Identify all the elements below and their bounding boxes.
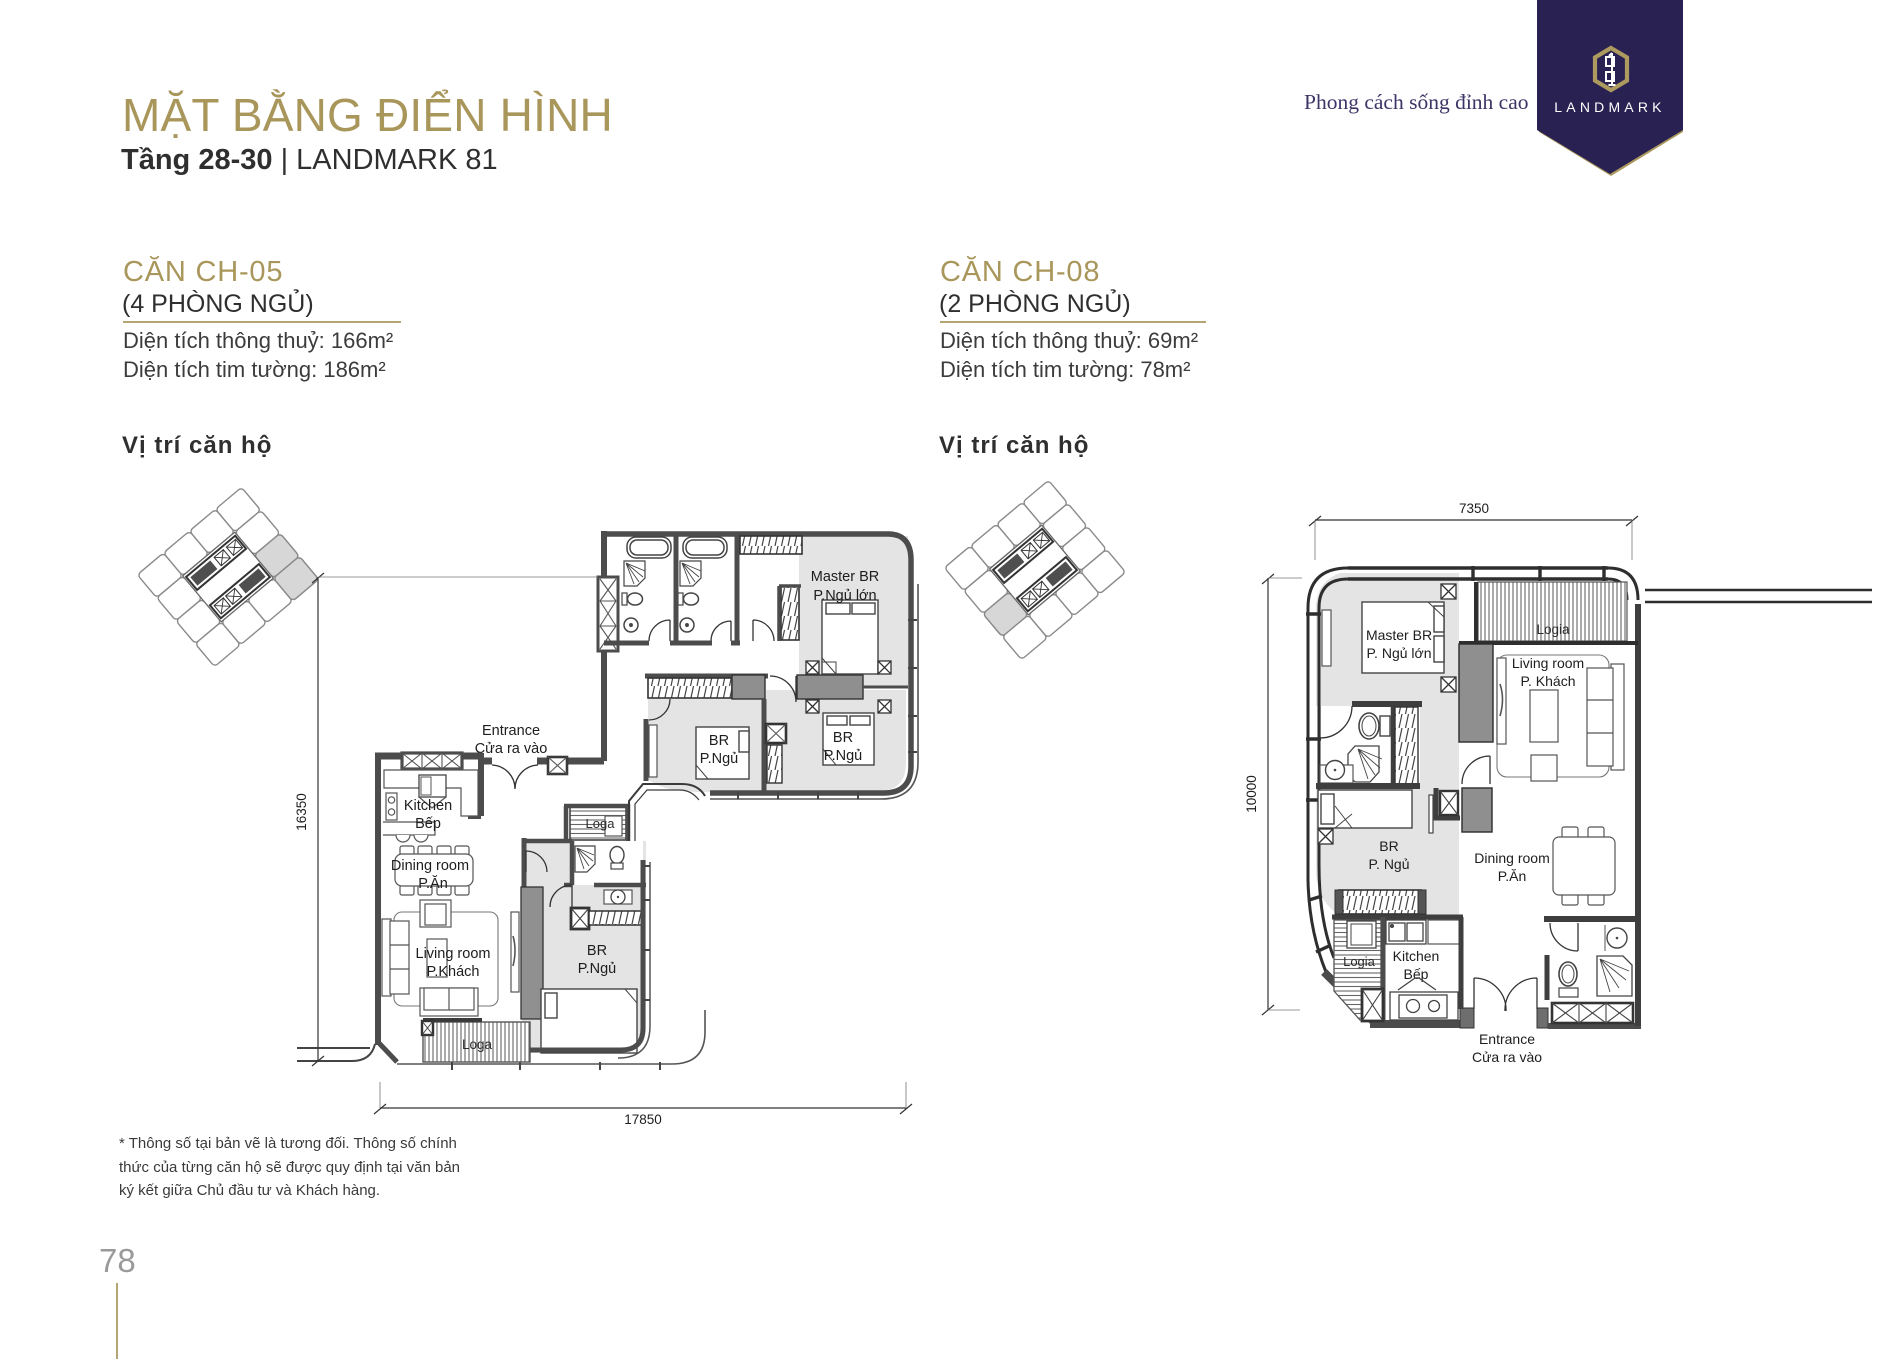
- svg-text:Master BR: Master BR: [1366, 627, 1432, 643]
- svg-text:P.Ăn: P.Ăn: [418, 875, 448, 892]
- svg-text:P.Ngủ lớn: P.Ngủ lớn: [813, 588, 876, 604]
- svg-text:Kitchen: Kitchen: [404, 798, 452, 814]
- svg-text:Dining room: Dining room: [1474, 850, 1549, 866]
- svg-text:17850: 17850: [624, 1112, 662, 1127]
- svg-text:P.Khách: P.Khách: [427, 964, 480, 980]
- svg-text:Dining room: Dining room: [391, 858, 469, 874]
- svg-text:Cửa ra vào: Cửa ra vào: [1472, 1049, 1542, 1065]
- svg-text:P. Ngủ: P. Ngủ: [1369, 856, 1410, 872]
- svg-text:Logia: Logia: [1343, 954, 1376, 969]
- svg-text:P. Ngủ lớn: P. Ngủ lớn: [1367, 645, 1432, 661]
- svg-text:Living room: Living room: [416, 946, 491, 962]
- svg-text:BR: BR: [833, 730, 853, 746]
- svg-text:Entrance: Entrance: [1479, 1031, 1535, 1047]
- svg-text:Logia: Logia: [1536, 622, 1570, 637]
- svg-text:10000: 10000: [1244, 775, 1259, 813]
- svg-text:BR: BR: [709, 733, 729, 749]
- svg-text:P.Ngủ: P.Ngủ: [578, 961, 616, 977]
- svg-text:LANDMARK: LANDMARK: [1554, 99, 1665, 115]
- svg-text:7350: 7350: [1459, 501, 1489, 516]
- svg-text:Master BR: Master BR: [811, 569, 880, 585]
- svg-text:Living room: Living room: [1512, 655, 1584, 671]
- svg-text:Entrance: Entrance: [482, 723, 540, 739]
- svg-text:P. Khách: P. Khách: [1520, 673, 1575, 689]
- svg-text:Cửa ra vào: Cửa ra vào: [475, 741, 548, 757]
- svg-text:P.Ăn: P.Ăn: [1498, 868, 1527, 884]
- svg-text:BR: BR: [587, 943, 607, 959]
- svg-text:16350: 16350: [294, 793, 309, 831]
- svg-text:Bếp: Bếp: [415, 816, 441, 832]
- svg-text:P.Ngủ: P.Ngủ: [700, 751, 738, 767]
- svg-text:Loga: Loga: [586, 816, 616, 831]
- svg-text:Kitchen: Kitchen: [1393, 948, 1440, 964]
- svg-text:BR: BR: [1379, 838, 1398, 854]
- svg-text:Loga: Loga: [462, 1037, 493, 1052]
- svg-text:P.Ngủ: P.Ngủ: [824, 748, 862, 764]
- svg-text:Bếp: Bếp: [1404, 966, 1429, 982]
